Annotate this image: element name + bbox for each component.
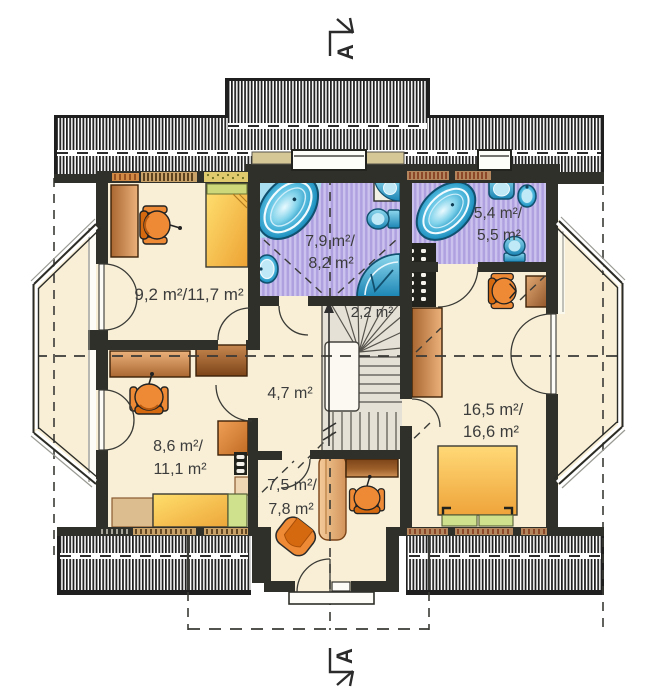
svg-text:16,5 m²/: 16,5 m²/ [463, 401, 524, 419]
svg-text:9,2 m²/11,7 m²: 9,2 m²/11,7 m² [134, 285, 244, 304]
svg-text:4,7 m²: 4,7 m² [267, 385, 313, 402]
svg-text:7,8 m²: 7,8 m² [268, 501, 314, 518]
svg-text:2,2 m²: 2,2 m² [351, 304, 394, 321]
svg-text:8,6 m²/: 8,6 m²/ [153, 438, 203, 455]
svg-text:7,5 m²/: 7,5 m²/ [267, 477, 317, 494]
svg-text:16,6 m²: 16,6 m² [463, 423, 519, 441]
svg-text:5,4 m²/: 5,4 m²/ [474, 205, 523, 222]
svg-text:A: A [332, 648, 357, 664]
svg-text:11,1 m²: 11,1 m² [153, 461, 207, 478]
svg-text:5,5 m²: 5,5 m² [477, 227, 521, 244]
svg-text:7,9 m²/: 7,9 m²/ [305, 233, 355, 250]
svg-text:A: A [333, 44, 358, 60]
svg-text:8,2 m²: 8,2 m² [308, 255, 354, 272]
